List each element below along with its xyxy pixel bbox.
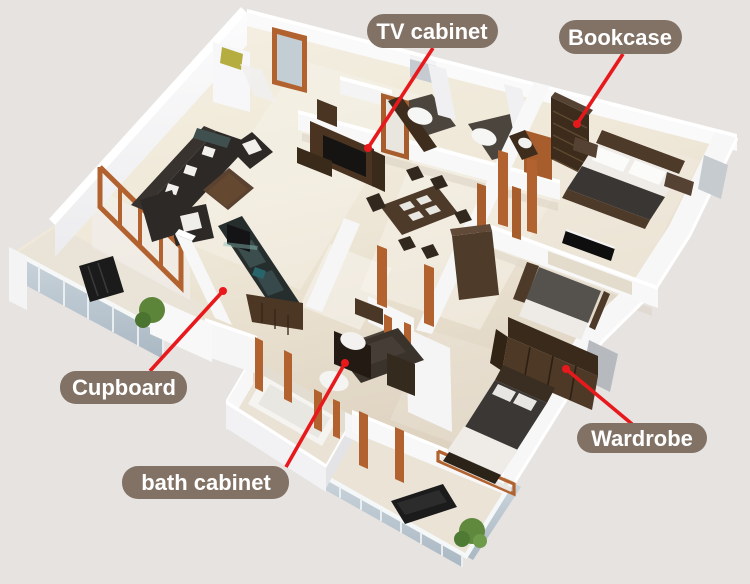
svg-text:Bookcase: Bookcase <box>568 25 672 50</box>
svg-text:bath cabinet: bath cabinet <box>141 470 271 495</box>
svg-text:Wardrobe: Wardrobe <box>591 426 693 451</box>
svg-text:Cupboard: Cupboard <box>72 375 176 400</box>
svg-text:TV cabinet: TV cabinet <box>376 19 488 44</box>
